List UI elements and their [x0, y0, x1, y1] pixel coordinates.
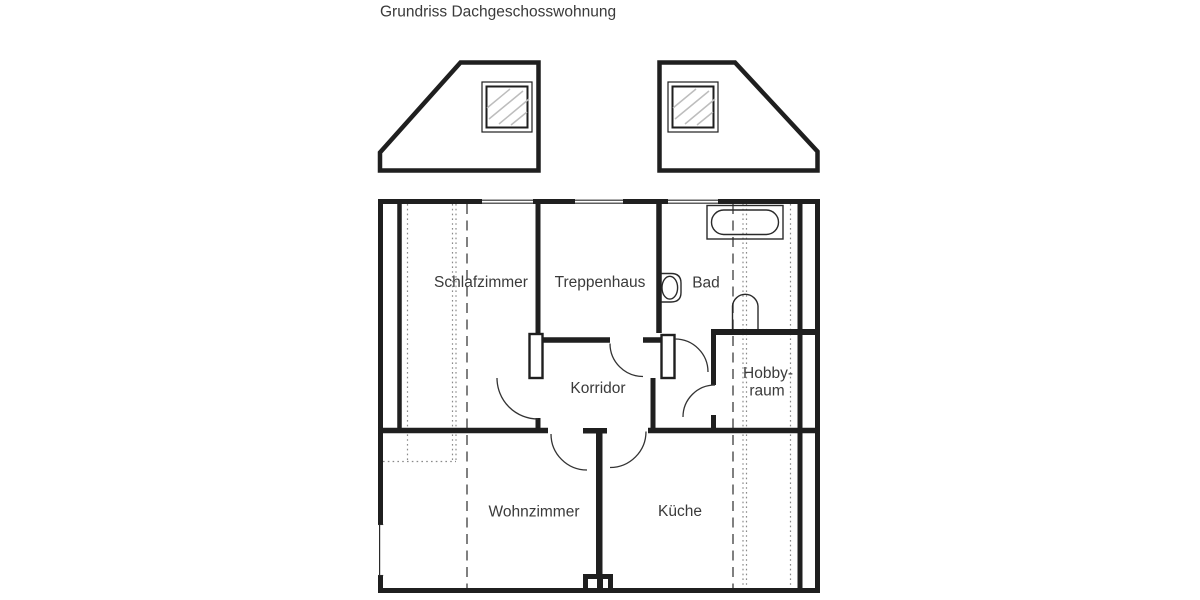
schlafzimmer-label: Schlafzimmer — [434, 274, 528, 291]
window-top-bad — [668, 199, 718, 205]
window-top-schlafzimmer — [482, 199, 533, 205]
wohnzimmer-label: Wohnzimmer — [488, 504, 579, 521]
hobbyraum-label-line1: Hobby- — [743, 365, 793, 382]
floor-plan-drawing: Grundriss Dachgeschosswohnung — [0, 0, 1200, 600]
bad-door-frame — [662, 335, 675, 378]
door-lining-bar — [583, 428, 607, 434]
bad-label: Bad — [692, 275, 720, 292]
window-left-wohnzimmer — [378, 524, 383, 576]
wohnzimmer-kueche-wall — [596, 429, 603, 575]
left-dormer-window-icon — [482, 82, 532, 132]
hobbyraum-label-line2: raum — [749, 383, 784, 400]
chimney-icon — [583, 574, 613, 589]
right-dormer — [660, 63, 818, 171]
window-top-treppenhaus — [575, 199, 623, 205]
right-dormer-window-icon — [668, 82, 718, 132]
kueche-label: Küche — [658, 503, 702, 520]
left-dormer — [380, 63, 539, 171]
floor-plan-page: Grundriss Dachgeschosswohnung — [0, 0, 1200, 600]
page-title: Grundriss Dachgeschosswohnung — [380, 4, 616, 21]
korridor-label: Korridor — [570, 380, 625, 397]
treppenhaus-label: Treppenhaus — [555, 274, 646, 291]
schlafzimmer-door-frame — [530, 334, 543, 378]
